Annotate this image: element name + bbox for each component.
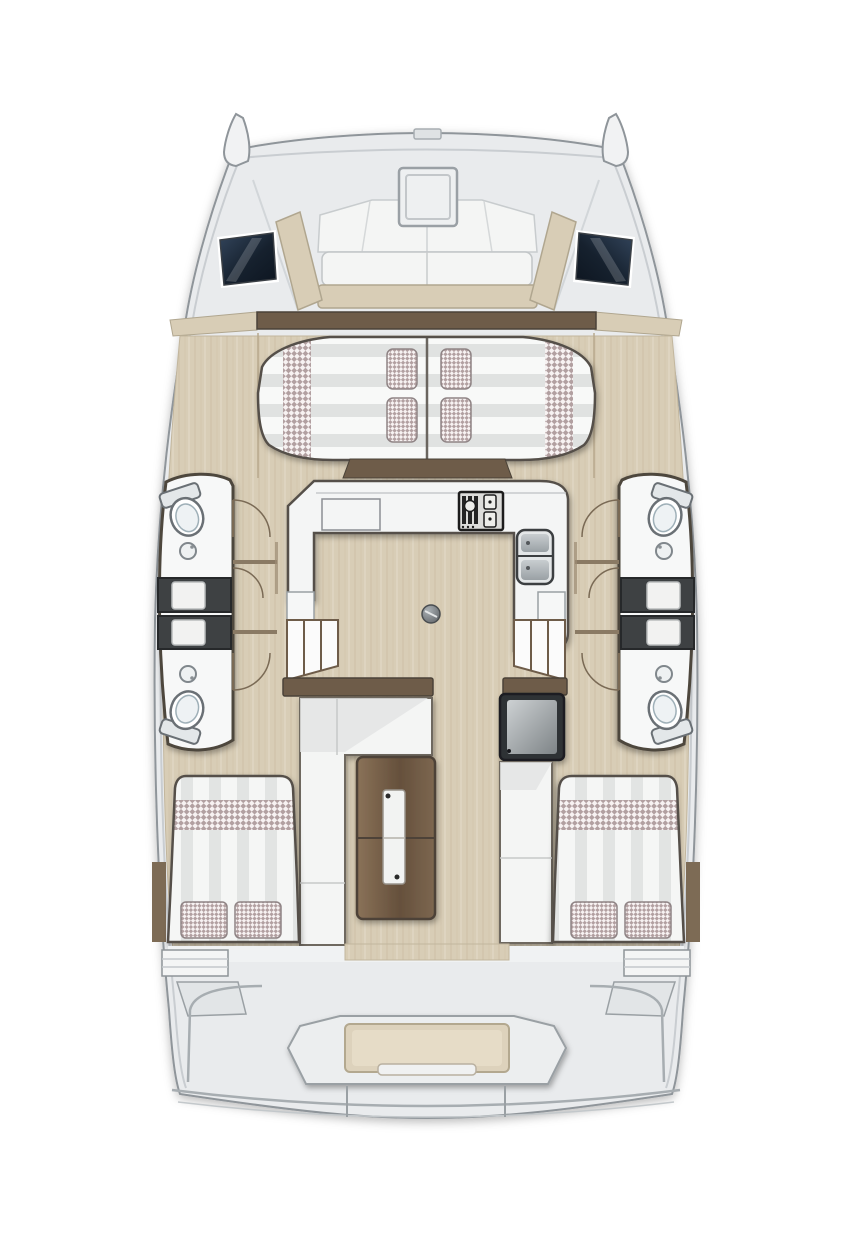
corridor-wall-stub [575, 630, 619, 634]
bow-tip-port [224, 114, 249, 166]
wash-basin-aft [656, 666, 672, 682]
stove-knob-dot [462, 526, 464, 528]
galley-sink [517, 530, 553, 584]
aft-berth-pillow [235, 902, 281, 938]
aft-berth-check-band [163, 800, 305, 830]
foredeck-hatch [399, 168, 457, 226]
bow-fitting [414, 129, 441, 139]
saloon-table [357, 757, 435, 919]
leaf-latch [395, 875, 400, 880]
companionway-landing [538, 592, 565, 620]
corridor-wall-stub [575, 560, 619, 564]
berth-pillow [441, 349, 471, 389]
forward-window-starboard [573, 230, 635, 288]
fridge-unit [500, 694, 564, 760]
sink-faucet [526, 566, 530, 570]
stove-burner [465, 501, 476, 512]
corridor-wall-stub [233, 630, 277, 634]
hull-trim-port [152, 862, 166, 942]
berth-check-bolster-port [283, 335, 311, 463]
stove-knob-dot [467, 526, 469, 528]
aft-bench [288, 1016, 566, 1084]
aft-berth-port [163, 770, 305, 948]
forward-island-berth [250, 330, 605, 470]
stove-knob-dot [472, 526, 474, 528]
forward-bench-base [318, 285, 537, 308]
berth-foot-trim [343, 459, 512, 478]
basin-faucet [658, 545, 662, 549]
shower-tray [647, 620, 680, 645]
wash-basin-fore [656, 543, 672, 559]
leaf-latch [386, 794, 391, 799]
forward-window-port [217, 230, 279, 288]
aisle-floor-tongue [345, 944, 509, 960]
aft-bench-cushion-inner [352, 1030, 502, 1066]
sink-faucet [526, 541, 530, 545]
catamaran-floor-plan: Top-down interior layout plan of a saili… [0, 0, 851, 1246]
shower-tray [647, 582, 680, 609]
berth-check-bolster-starboard [545, 335, 573, 463]
sink-basin [521, 560, 549, 580]
bow-tip-starboard [603, 114, 628, 166]
floor-plan-canvas: Top-down interior layout plan of a saili… [0, 0, 851, 1246]
bench-handle-notch [378, 1064, 476, 1075]
basin-faucet [190, 676, 194, 680]
aft-berth-pillow [571, 902, 617, 938]
basin-faucet [658, 676, 662, 680]
shower-tray [172, 620, 205, 645]
fridge-latch [507, 749, 511, 753]
sink-basin [521, 534, 549, 552]
stove-knob-dot [488, 517, 491, 520]
stove [459, 492, 503, 530]
nav-shelf [503, 678, 567, 695]
table-leaf-insert [383, 790, 405, 884]
corridor-wall-stub [574, 542, 577, 594]
aft-berth-starboard [547, 770, 689, 948]
crossbeam-band [257, 312, 596, 329]
corridor-wall-stub [275, 542, 278, 594]
aft-berth-pillow [181, 902, 227, 938]
berth-pillow [387, 398, 417, 442]
berth-pillow [387, 349, 417, 389]
shower-tray [172, 582, 205, 609]
corridor-wall-stub [233, 560, 277, 564]
basin-faucet [190, 545, 194, 549]
settee-back-rail [283, 678, 433, 696]
fridge-lid [507, 700, 557, 754]
companionway-landing [287, 592, 314, 620]
wash-basin-fore [180, 543, 196, 559]
berth-pillow [441, 398, 471, 442]
aft-berth-pillow [625, 902, 671, 938]
wash-basin-aft [180, 666, 196, 682]
hull-trim-starboard [686, 862, 700, 942]
stove-knob-dot [488, 500, 491, 503]
aft-berth-check-band [547, 800, 689, 830]
